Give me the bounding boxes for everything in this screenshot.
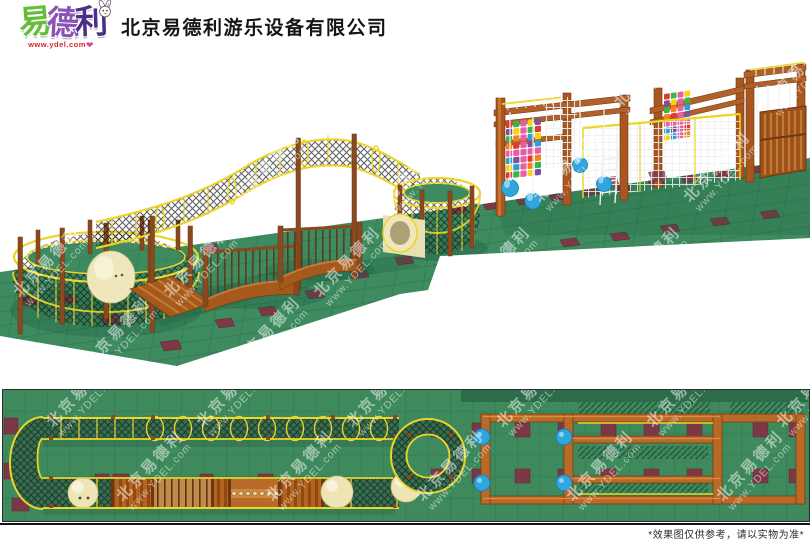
company-logo: 易德利 www.ydel.com❤: [10, 2, 112, 55]
company-name: 北京易德利游乐设备有限公司: [121, 13, 388, 40]
render-3d-svg: 北京易德利www.YDEL.com 北京易德利www.YDEL.com 北京易德…: [0, 58, 810, 383]
floor-plan-view: 北京易德利www.YDEL.com 北京易德利www.YDEL.com 北京易德…: [2, 389, 810, 522]
floor-plan-svg: 北京易德利www.YDEL.com 北京易德利www.YDEL.com 北京易德…: [3, 390, 809, 521]
logo-char-1: 易: [17, 1, 48, 43]
disclaimer-note: *效果图仅供参考，请以实物为准*: [648, 526, 804, 540]
rainbow-climb-wall: [506, 118, 541, 178]
logo-char-2: 德: [46, 2, 76, 43]
logo-bubble-text: 易德利: [10, 2, 112, 42]
crawl-cylinder: [383, 214, 425, 258]
rabbit-icon: [94, 0, 116, 19]
render-3d-view: 北京易德利www.YDEL.com 北京易德利www.YDEL.com 北京易德…: [0, 58, 810, 383]
crawl-egg: [87, 251, 135, 303]
divider-line: [0, 523, 810, 525]
product-render-sheet: 易德利 www.ydel.com❤ 北京易德利游乐设备有限公司: [0, 0, 810, 540]
